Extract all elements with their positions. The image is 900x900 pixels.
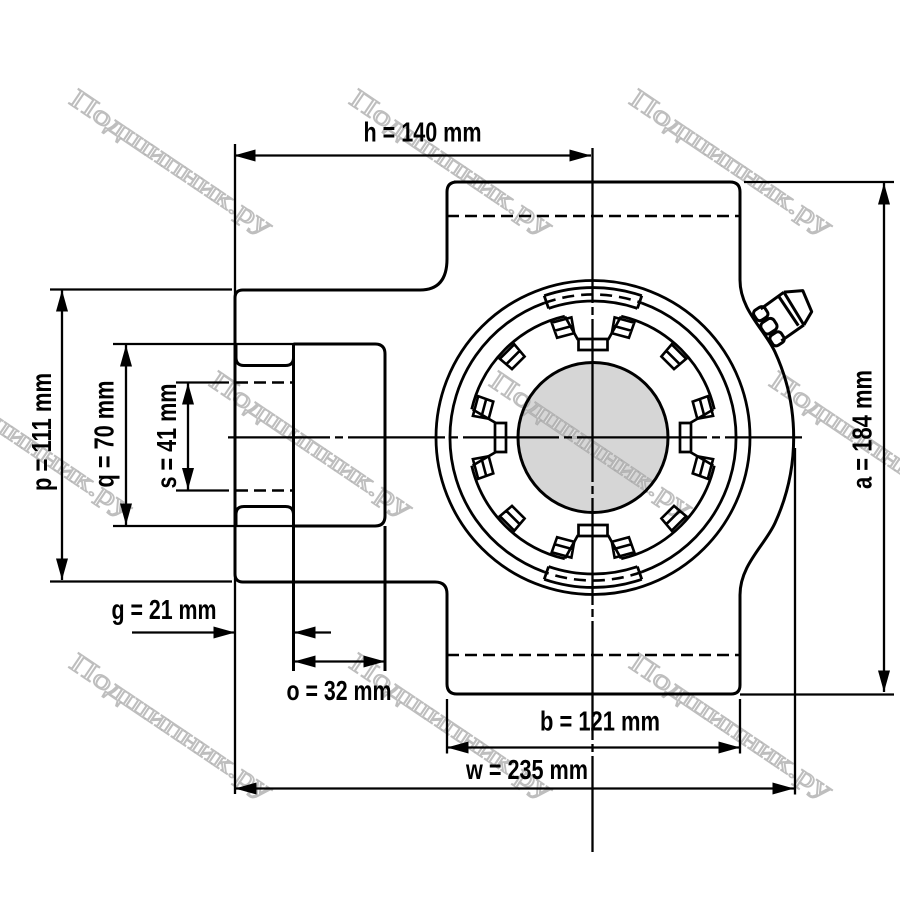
svg-text:p = 111 mm: p = 111 mm <box>26 373 57 491</box>
svg-text:h = 140 mm: h = 140 mm <box>364 117 482 148</box>
svg-text:w = 235 mm: w = 235 mm <box>465 754 588 785</box>
svg-text:q = 70 mm: q = 70 mm <box>89 381 120 488</box>
svg-text:o = 32 mm: o = 32 mm <box>287 675 392 706</box>
svg-text:b = 121 mm: b = 121 mm <box>540 706 660 737</box>
svg-text:a = 184 mm: a = 184 mm <box>847 370 878 489</box>
svg-text:g = 21 mm: g = 21 mm <box>112 594 217 625</box>
svg-text:s = 41 mm: s = 41 mm <box>151 384 182 489</box>
